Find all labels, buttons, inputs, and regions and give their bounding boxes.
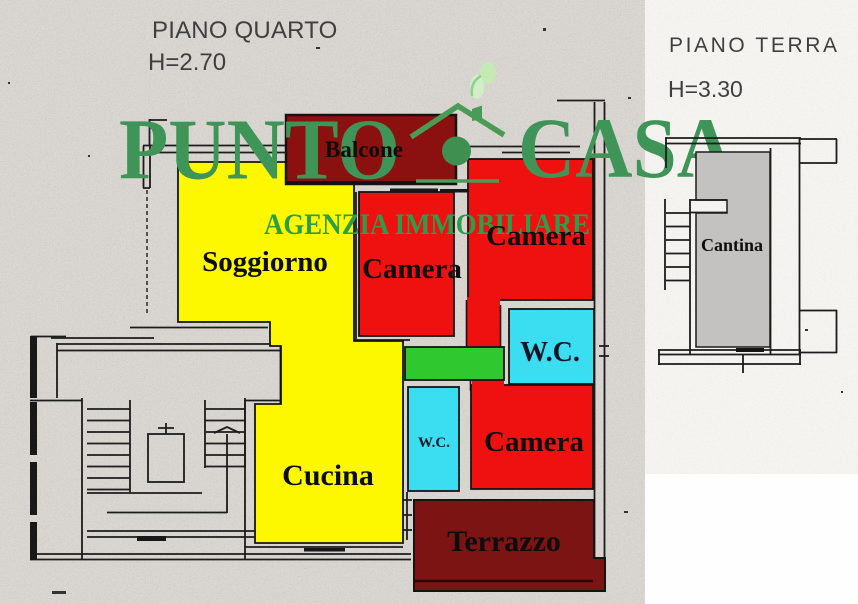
svg-text:Cucina: Cucina	[282, 459, 374, 492]
svg-text:Camera: Camera	[486, 220, 586, 252]
svg-text:Camera: Camera	[362, 253, 462, 285]
svg-text:W.C.: W.C.	[418, 435, 450, 451]
svg-text:Balcone: Balcone	[325, 137, 403, 162]
svg-text:H=2.70: H=2.70	[148, 49, 226, 76]
svg-text:Soggiorno: Soggiorno	[202, 246, 328, 278]
svg-text:H=3.30: H=3.30	[668, 76, 743, 102]
svg-text:Terrazzo: Terrazzo	[447, 525, 561, 558]
svg-text:PIANO TERRA: PIANO TERRA	[669, 34, 840, 57]
svg-text:PIANO QUARTO: PIANO QUARTO	[152, 17, 338, 44]
svg-text:Camera: Camera	[484, 426, 584, 458]
svg-text:Cantina: Cantina	[701, 235, 763, 255]
svg-text:W.C.: W.C.	[520, 337, 580, 368]
